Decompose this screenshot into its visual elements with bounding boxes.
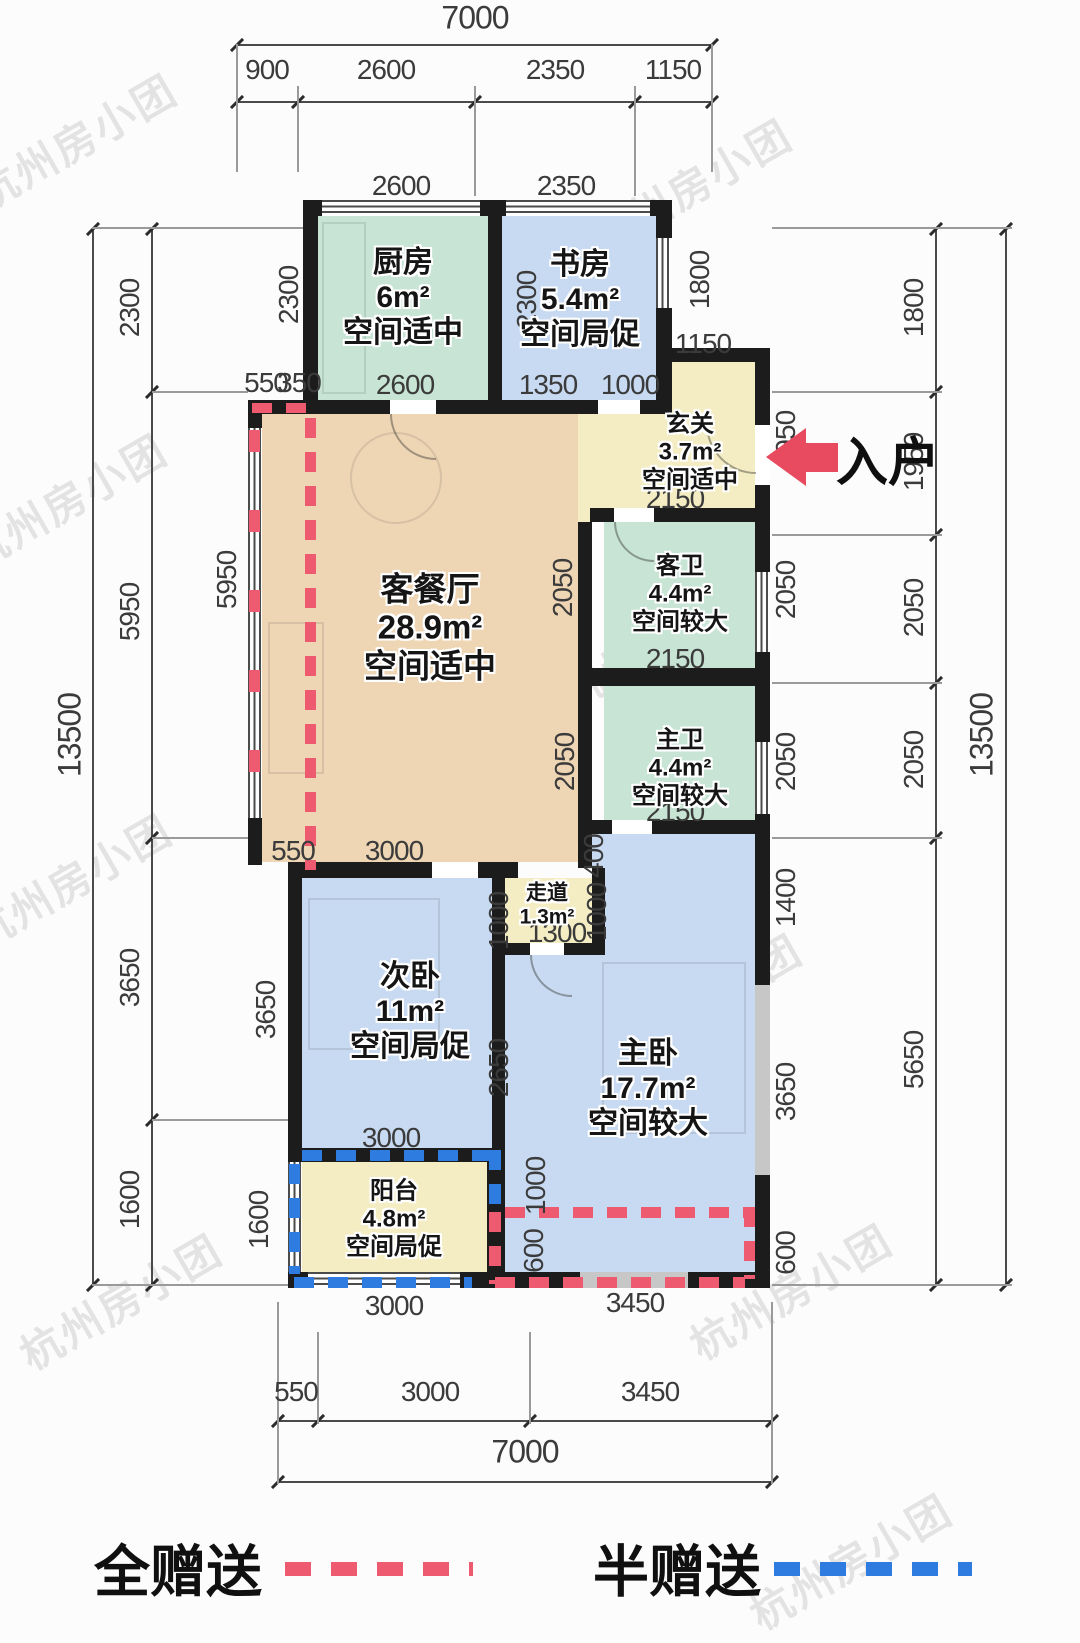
dim-inner: 1150 (675, 328, 731, 360)
room-note: 空间较大 (588, 1106, 708, 1141)
room-name: 玄关 (642, 410, 738, 438)
dim-inner: 2050 (547, 559, 579, 617)
window (656, 238, 672, 308)
room-note: 空间局促 (350, 1029, 470, 1064)
dim-extension-line (772, 534, 942, 536)
room-note: 空间适中 (642, 466, 738, 494)
legend-full-gift-dash (285, 1562, 473, 1576)
dim-inner: 3450 (606, 1287, 664, 1319)
wall (578, 522, 592, 868)
room-name: 客卫 (632, 552, 728, 580)
window (755, 985, 770, 1175)
dim-extension-line (297, 86, 299, 172)
dim-inner: 3000 (362, 1122, 420, 1154)
room-area: 4.4m² (632, 580, 728, 608)
window (506, 200, 650, 216)
wall (288, 862, 302, 1162)
room-label-study: 书房 5.4m² 空间局促 (520, 248, 640, 352)
window (322, 200, 480, 216)
dim-left-seg: 1600 (114, 1171, 146, 1229)
dim-right-total: 13500 (964, 693, 1001, 777)
full-gift-dash-line (305, 418, 316, 870)
dim-inner: 2300 (273, 266, 305, 324)
room-entry (672, 362, 755, 416)
dim-inner: 3000 (365, 835, 423, 867)
dim-bottom-seg: 3000 (401, 1376, 459, 1408)
dim-line-right-segments (935, 228, 937, 1286)
room-area: 28.9m² (364, 609, 496, 647)
dim-line-left-total (92, 228, 94, 1286)
watermark: 杭州房小团 (7, 1217, 232, 1382)
dim-extension-line (772, 682, 942, 684)
room-note: 空间局促 (346, 1233, 442, 1261)
dim-left-seg: 5950 (114, 583, 146, 641)
dim-extension-line (529, 1332, 531, 1424)
dim-inner: 2150 (646, 643, 704, 675)
room-name: 次卧 (350, 960, 470, 995)
room-name: 走道 (520, 882, 575, 906)
room-area: 11m² (350, 995, 470, 1030)
entry-arrow-icon (806, 443, 838, 472)
room-area: 1.3m² (520, 906, 575, 930)
room-area: 3.7m² (642, 438, 738, 466)
room-master-bedroom (592, 834, 755, 955)
dim-extension-line (772, 837, 942, 839)
room-note: 空间适中 (343, 315, 463, 350)
dim-inner: 1000 (601, 369, 659, 401)
dim-inner: 400 (578, 834, 610, 878)
dim-inner: 1600 (243, 1191, 275, 1249)
room-name: 厨房 (343, 246, 463, 281)
entry-arrow-icon (766, 428, 806, 486)
dim-inner: 2650 (483, 1039, 515, 1097)
full-gift-dash-line (249, 430, 260, 818)
dim-inner: 2050 (549, 733, 581, 791)
dim-extension-line (152, 1119, 288, 1121)
dim-inner: 350 (277, 367, 321, 399)
room-area: 5.4m² (520, 283, 640, 318)
full-gift-dash-line (252, 403, 308, 413)
dim-right-seg: 2050 (898, 731, 930, 789)
dim-bottom-seg: 3450 (621, 1376, 679, 1408)
window (755, 572, 770, 652)
window (755, 742, 770, 814)
room-area: 6m² (343, 281, 463, 316)
room-note: 空间较大 (632, 782, 728, 810)
dim-extension-line (92, 227, 305, 229)
dim-left-seg: 3650 (114, 949, 146, 1007)
dim-inner: 1000 (483, 892, 515, 950)
dim-inner: 2600 (372, 170, 430, 202)
half-gift-dash-line (289, 1164, 300, 1274)
room-label-master-bath: 主卫 4.4m² 空间较大 (632, 726, 728, 809)
room-label-second-bedroom: 次卧 11m² 空间局促 (350, 960, 470, 1064)
room-name: 阳台 (346, 1177, 442, 1205)
door-opening (598, 400, 640, 414)
dim-extension-line (152, 391, 248, 393)
dim-top-total: 7000 (441, 0, 508, 37)
door-opening (432, 862, 478, 878)
room-note: 空间适中 (364, 647, 496, 685)
room-note: 空间较大 (632, 608, 728, 636)
dim-extension-line (92, 1284, 288, 1286)
dim-extension-line (771, 1302, 773, 1484)
dim-inner: 1800 (684, 251, 716, 309)
room-label-corridor: 走道 1.3m² (520, 882, 575, 931)
dim-extension-line (772, 1284, 1012, 1286)
room-area: 17.7m² (588, 1072, 708, 1107)
dim-inner: 5950 (211, 551, 243, 609)
dim-left-seg: 2300 (114, 279, 146, 337)
room-label-guest-bath: 客卫 4.4m² 空间较大 (632, 552, 728, 635)
dim-inner: 3000 (365, 1290, 423, 1322)
half-gift-dash-line (294, 1277, 472, 1288)
dim-extension-line (772, 227, 1012, 229)
room-label-living: 客餐厅 28.9m² 空间适中 (364, 571, 496, 686)
watermark: 杭州房小团 (0, 57, 188, 222)
dim-extension-line (236, 44, 238, 172)
dim-inner: 2050 (770, 561, 802, 619)
dim-extension-line (711, 44, 713, 172)
dim-top-seg: 1150 (645, 54, 701, 86)
dim-inner: 2600 (376, 369, 434, 401)
wall (488, 216, 502, 414)
dim-top-seg: 2600 (357, 54, 415, 86)
legend-half-gift-dash (774, 1562, 972, 1576)
dim-left-total: 13500 (52, 693, 89, 777)
floorplan-canvas: 杭州房小团 杭州房小团 杭州房小团 杭州房小团 杭州房小团 杭州房小团 杭州房小… (0, 0, 1080, 1643)
room-label-balcony: 阳台 4.8m² 空间局促 (346, 1177, 442, 1260)
dim-inner: 600 (518, 1229, 550, 1273)
dim-extension-line (772, 391, 942, 393)
dim-line-right-total (1005, 228, 1007, 1286)
half-gift-dash-line (489, 1150, 501, 1212)
door-opening (390, 400, 436, 414)
dim-inner: 1400 (770, 869, 802, 927)
dim-top-seg: 900 (245, 54, 289, 86)
dim-extension-line (634, 86, 636, 196)
dim-extension-line (474, 86, 476, 196)
watermark: 杭州房小团 (737, 1477, 962, 1642)
dim-right-seg: 2050 (898, 579, 930, 637)
dim-inner: 3650 (770, 1063, 802, 1121)
dim-top-seg: 2350 (526, 54, 584, 86)
room-name: 客餐厅 (364, 571, 496, 609)
dim-inner: 3650 (250, 981, 282, 1039)
dim-line-bottom-segments (278, 1420, 772, 1422)
legend-full-gift-label: 全赠送 (94, 1528, 262, 1609)
entry-arrow-label: 入户 (836, 421, 940, 496)
full-gift-dash-line (489, 1212, 501, 1284)
dim-right-seg: 5650 (898, 1031, 930, 1089)
dim-bottom-total: 7000 (491, 1434, 558, 1471)
dim-inner: 550 (271, 835, 315, 867)
room-name: 主卫 (632, 726, 728, 754)
legend-half-gift-label: 半赠送 (593, 1528, 761, 1609)
dim-inner: 600 (770, 1231, 802, 1275)
room-area: 4.8m² (346, 1205, 442, 1233)
full-gift-dash-line (744, 1207, 755, 1279)
dim-line-left-segments (151, 228, 153, 1286)
dim-inner: 1000 (520, 1157, 552, 1215)
room-name: 书房 (520, 248, 640, 283)
dim-line-bottom-total (278, 1481, 772, 1483)
room-area: 4.4m² (632, 754, 728, 782)
room-label-kitchen: 厨房 6m² 空间适中 (343, 246, 463, 350)
dim-inner: 2050 (770, 733, 802, 791)
dim-inner: 2350 (537, 170, 595, 202)
room-name: 主卧 (588, 1037, 708, 1072)
room-label-master-bedroom: 主卧 17.7m² 空间较大 (588, 1037, 708, 1141)
dim-inner: 1350 (519, 369, 577, 401)
room-label-entry: 玄关 3.7m² 空间适中 (642, 410, 738, 493)
room-note: 空间局促 (520, 317, 640, 352)
dim-bottom-seg: 550 (274, 1376, 318, 1408)
dim-line-top-total (237, 44, 712, 46)
dim-right-seg: 1800 (898, 279, 930, 337)
